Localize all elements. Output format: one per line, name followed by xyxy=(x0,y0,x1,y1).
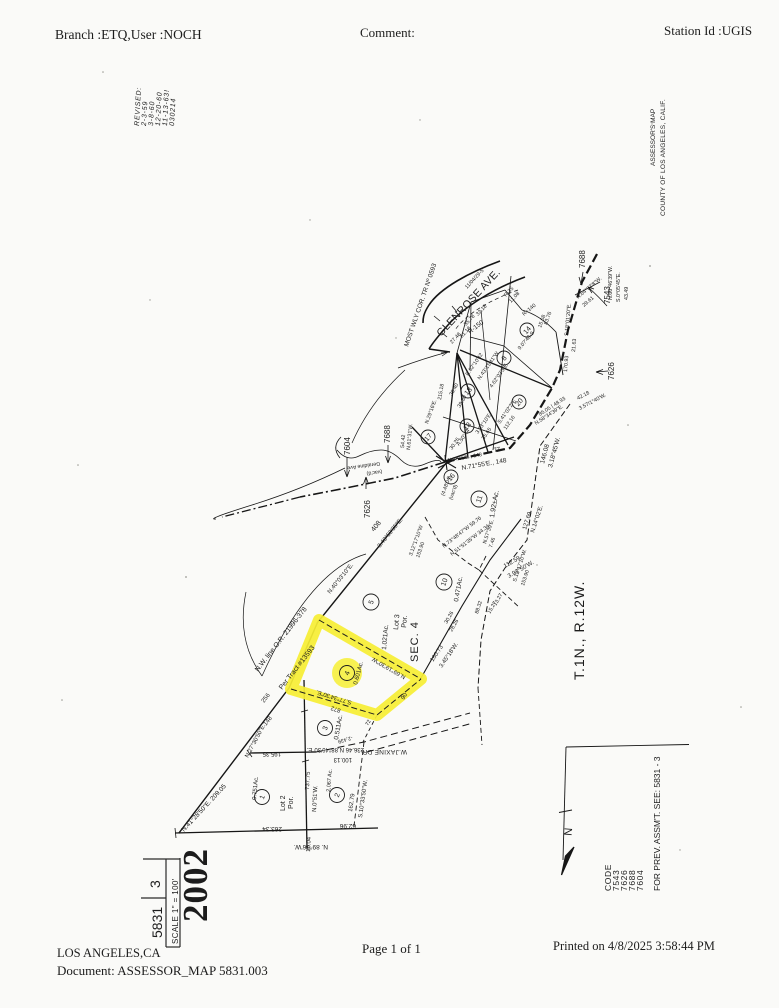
svg-text:Branch :ETQ,User :NOCH: Branch :ETQ,User :NOCH xyxy=(55,27,202,42)
svg-text:Comment:: Comment: xyxy=(360,25,415,40)
svg-text:Por.: Por. xyxy=(288,796,295,809)
svg-text:7688: 7688 xyxy=(578,250,587,268)
svg-text:FOR PREV. ASSM'T. SEE: 5831 -: FOR PREV. ASSM'T. SEE: 5831 - 3 xyxy=(652,756,662,891)
svg-text:Por.: Por. xyxy=(401,615,409,628)
svg-text:S.0°05'45"E.: S.0°05'45"E. xyxy=(616,272,622,302)
svg-text:7626: 7626 xyxy=(607,362,616,380)
svg-text:16.04: 16.04 xyxy=(306,836,313,852)
svg-text:Station Id :UGIS: Station Id :UGIS xyxy=(664,23,752,38)
svg-text:N.66°46'39"W.: N.66°46'39"W. xyxy=(608,266,614,300)
svg-text:W.JAXINE DR.: W.JAXINE DR. xyxy=(360,748,407,755)
svg-text:N: N xyxy=(563,827,576,836)
svg-text:3: 3 xyxy=(147,880,163,888)
svg-text:ASSESSOR'S MAP: ASSESSOR'S MAP xyxy=(650,109,657,166)
svg-text:7688: 7688 xyxy=(383,425,392,443)
svg-text:21.63: 21.63 xyxy=(571,338,578,352)
svg-text:7604: 7604 xyxy=(343,437,352,455)
svg-text:SEC. 4: SEC. 4 xyxy=(409,621,421,662)
svg-text:030214: 030214 xyxy=(169,98,177,126)
svg-text:263.34: 263.34 xyxy=(262,825,282,832)
svg-text:Document: ASSESSOR_MAP 5831.00: Document: ASSESSOR_MAP 5831.003 xyxy=(57,963,268,978)
svg-text:5831: 5831 xyxy=(149,907,165,938)
svg-text:7604: 7604 xyxy=(635,870,645,891)
svg-text:LOS ANGELES,CA: LOS ANGELES,CA xyxy=(57,946,160,960)
svg-text:737.75: 737.75 xyxy=(305,771,312,790)
svg-text:236.46 N.88°46'30"E.: 236.46 N.88°46'30"E. xyxy=(306,746,364,752)
svg-text:2002: 2002 xyxy=(176,848,215,922)
svg-text:Page 1 of 1: Page 1 of 1 xyxy=(362,941,421,956)
svg-text:195.35: 195.35 xyxy=(262,750,281,756)
svg-text:62.96: 62.96 xyxy=(339,822,356,829)
svg-text:Lot 2: Lot 2 xyxy=(280,795,287,811)
svg-text:43.49: 43.49 xyxy=(624,287,630,300)
svg-text:7626: 7626 xyxy=(363,500,372,518)
svg-text:100.13: 100.13 xyxy=(333,756,352,762)
svg-text:T.1N., R.12W.: T.1N., R.12W. xyxy=(571,581,587,680)
svg-text:Printed on 4/8/2025 3:58:44 PM: Printed on 4/8/2025 3:58:44 PM xyxy=(553,939,715,953)
svg-text:COUNTY OF LOS ANGELES, CALIF.: COUNTY OF LOS ANGELES, CALIF. xyxy=(660,99,667,216)
